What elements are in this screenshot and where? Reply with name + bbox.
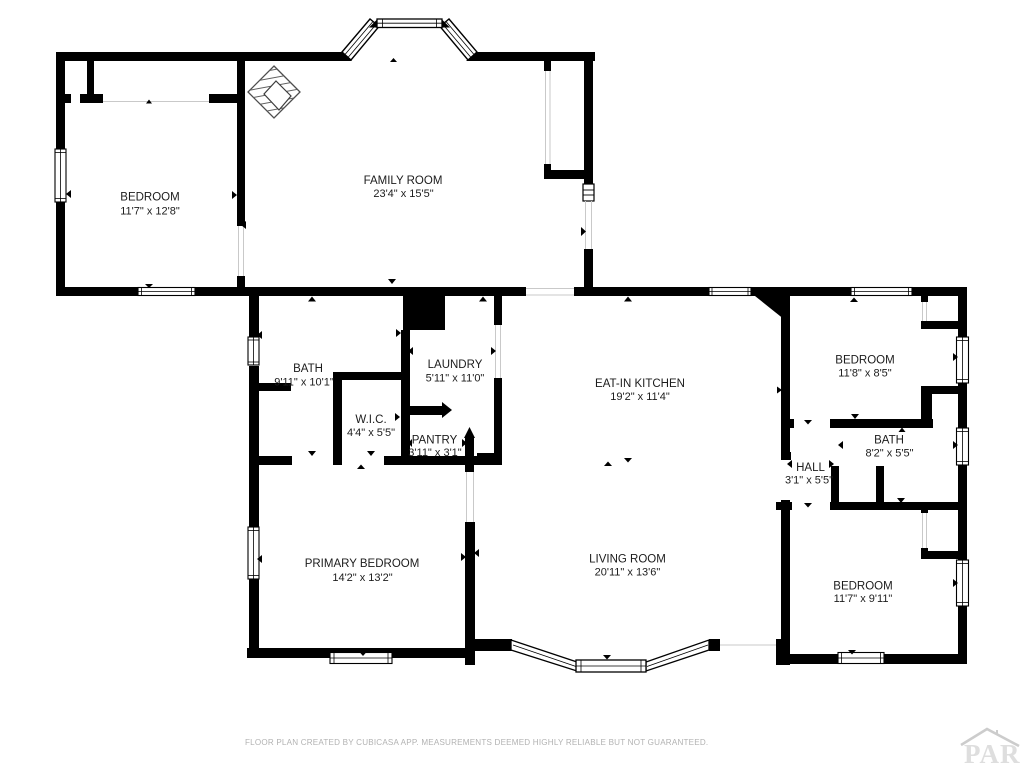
svg-text:PANTRY: PANTRY	[412, 435, 458, 447]
svg-text:11'7" x 12'8": 11'7" x 12'8"	[120, 206, 180, 218]
svg-text:3'1" x 5'5": 3'1" x 5'5"	[785, 475, 833, 487]
svg-text:LAUNDRY: LAUNDRY	[428, 359, 483, 371]
svg-text:4'4" x 5'5": 4'4" x 5'5"	[347, 427, 395, 439]
svg-text:11'8" x 8'5": 11'8" x 8'5"	[838, 368, 891, 380]
svg-text:FAMILY ROOM: FAMILY ROOM	[364, 175, 443, 187]
svg-text:BEDROOM: BEDROOM	[835, 354, 894, 366]
svg-text:9'11" x 10'1": 9'11" x 10'1"	[274, 377, 334, 389]
svg-text:EAT-IN KITCHEN: EAT-IN KITCHEN	[595, 378, 685, 390]
svg-text:5'11" x 11'0": 5'11" x 11'0"	[426, 373, 485, 385]
svg-text:8'2" x 5'5": 8'2" x 5'5"	[865, 448, 913, 460]
svg-text:W.I.C.: W.I.C.	[355, 414, 386, 426]
svg-text:PRIMARY BEDROOM: PRIMARY BEDROOM	[305, 558, 420, 570]
svg-text:BATH: BATH	[874, 435, 904, 447]
svg-text:BEDROOM: BEDROOM	[833, 581, 892, 593]
svg-text:3'11" x 3'1": 3'11" x 3'1"	[408, 447, 461, 459]
svg-text:20'11" x 13'6": 20'11" x 13'6"	[595, 567, 661, 579]
svg-text:BATH: BATH	[293, 363, 323, 375]
svg-text:11'7" x 9'11": 11'7" x 9'11"	[834, 593, 893, 605]
svg-text:14'2" x 13'2": 14'2" x 13'2"	[332, 572, 392, 584]
svg-text:BEDROOM: BEDROOM	[120, 192, 179, 204]
svg-text:FLOOR PLAN CREATED BY CUBICASA: FLOOR PLAN CREATED BY CUBICASA APP. MEAS…	[245, 738, 708, 747]
svg-text:PAR: PAR	[964, 739, 1021, 768]
svg-text:19'2" x 11'4": 19'2" x 11'4"	[610, 391, 670, 403]
svg-text:23'4" x 15'5": 23'4" x 15'5"	[373, 188, 433, 200]
svg-text:HALL: HALL	[796, 462, 825, 474]
svg-text:LIVING ROOM: LIVING ROOM	[589, 554, 666, 566]
